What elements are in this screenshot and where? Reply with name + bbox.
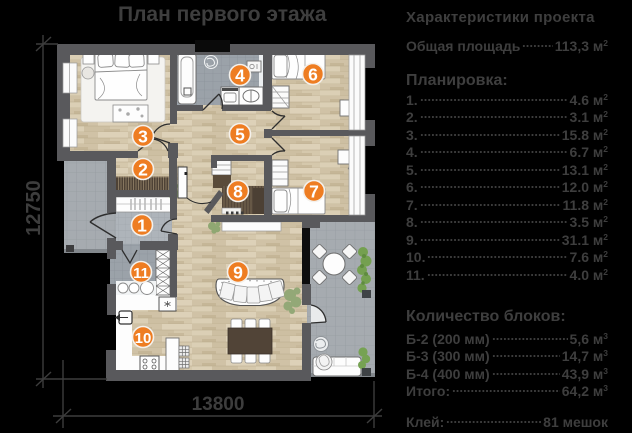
svg-text:13800: 13800 xyxy=(192,394,245,415)
svg-text:4: 4 xyxy=(235,66,245,86)
svg-text:8: 8 xyxy=(233,182,243,202)
svg-text:10: 10 xyxy=(135,330,152,347)
svg-text:11: 11 xyxy=(133,265,149,282)
svg-text:6: 6 xyxy=(308,65,318,85)
svg-text:7: 7 xyxy=(309,182,319,202)
svg-text:12750: 12750 xyxy=(23,180,45,236)
svg-text:3: 3 xyxy=(138,127,148,147)
svg-text:5: 5 xyxy=(235,125,245,145)
svg-text:2: 2 xyxy=(138,160,148,180)
svg-text:1: 1 xyxy=(137,216,147,236)
svg-text:9: 9 xyxy=(233,263,243,283)
